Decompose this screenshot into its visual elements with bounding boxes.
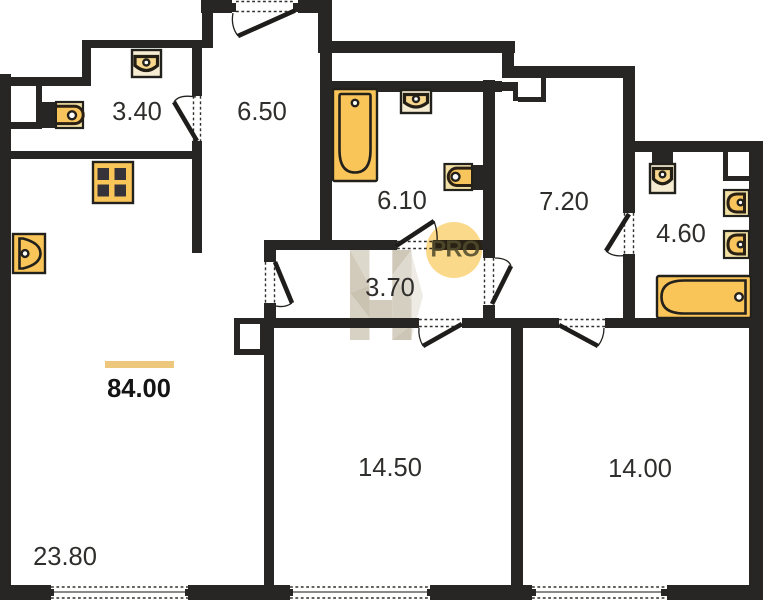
svg-text:7.20: 7.20 bbox=[539, 188, 589, 216]
svg-text:23.80: 23.80 bbox=[33, 543, 97, 571]
svg-text:14.00: 14.00 bbox=[608, 455, 672, 483]
svg-text:14.50: 14.50 bbox=[358, 454, 422, 482]
svg-text:84.00: 84.00 bbox=[107, 375, 171, 403]
svg-text:3.40: 3.40 bbox=[112, 98, 162, 126]
svg-text:4.60: 4.60 bbox=[656, 220, 706, 248]
svg-text:6.10: 6.10 bbox=[377, 187, 427, 215]
svg-text:PRO: PRO bbox=[430, 236, 479, 262]
svg-text:3.70: 3.70 bbox=[365, 274, 415, 302]
svg-text:6.50: 6.50 bbox=[237, 98, 287, 126]
